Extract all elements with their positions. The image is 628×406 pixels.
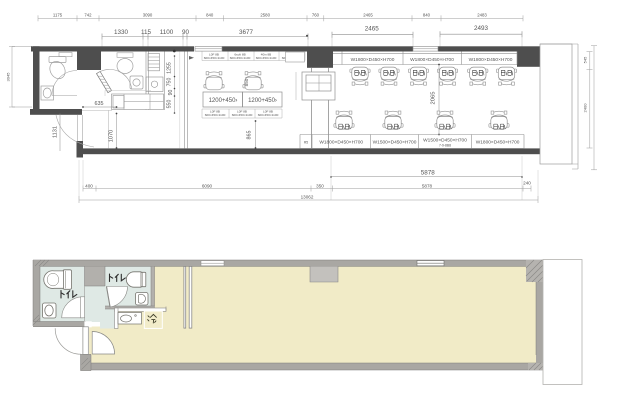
svg-text:1175: 1175	[53, 13, 63, 18]
svg-text:13062: 13062	[301, 194, 314, 199]
svg-text:865: 865	[247, 131, 253, 140]
svg-text:W1800×D450×H700: W1800×D450×H700	[469, 57, 513, 63]
svg-text:R5: R5	[304, 141, 308, 145]
svg-text:742: 742	[84, 13, 92, 18]
svg-text:W1800×D450×H700: W1800×D450×H700	[476, 140, 520, 146]
svg-text:840: 840	[423, 13, 431, 18]
svg-text:3045: 3045	[6, 72, 11, 82]
svg-text:1070: 1070	[109, 130, 115, 142]
svg-text:90: 90	[182, 29, 190, 36]
svg-text:1255: 1255	[167, 62, 173, 74]
svg-text:550: 550	[167, 100, 173, 109]
svg-text:W1800×D450×H700: W1800×D450×H700	[410, 57, 454, 63]
svg-text:600×450×1100: 600×450×1100	[256, 56, 277, 60]
svg-text:600×450×1100: 600×450×1100	[232, 113, 253, 117]
svg-text:750: 750	[167, 78, 173, 87]
svg-text:760: 760	[312, 13, 320, 18]
svg-text:2065: 2065	[431, 92, 437, 105]
svg-text:W1800×D450×H700: W1800×D450×H700	[351, 57, 395, 63]
svg-text:400: 400	[85, 183, 93, 188]
svg-text:3090: 3090	[143, 13, 153, 18]
svg-text:2400: 2400	[583, 103, 588, 113]
svg-text:850: 850	[244, 78, 249, 86]
svg-text:2493: 2493	[474, 25, 489, 32]
svg-text:600×450×1100: 600×450×1100	[258, 113, 279, 117]
svg-text:545: 545	[583, 56, 588, 63]
svg-text:1200+450›: 1200+450›	[209, 98, 238, 104]
svg-text:3677: 3677	[239, 29, 254, 36]
svg-text:840: 840	[206, 13, 214, 18]
svg-text:115: 115	[141, 29, 152, 36]
svg-text:5878: 5878	[421, 170, 436, 177]
svg-text:600×450×1100: 600×450×1100	[205, 113, 226, 117]
svg-text:1131: 1131	[53, 126, 59, 138]
svg-text:2483: 2483	[477, 13, 487, 18]
svg-text:1200+450›: 1200+450›	[248, 98, 277, 104]
svg-text:2465: 2465	[363, 13, 373, 18]
svg-text:7-9-8B8: 7-9-8B8	[439, 144, 451, 148]
svg-text:W1500×D450×H700: W1500×D450×H700	[373, 140, 417, 146]
svg-text:635: 635	[95, 101, 104, 107]
svg-text:2580: 2580	[260, 13, 270, 18]
svg-text:6090: 6090	[202, 183, 213, 188]
svg-text:W1500×D450×H700: W1500×D450×H700	[423, 137, 467, 143]
svg-text:2465: 2465	[365, 26, 380, 33]
svg-text:350: 350	[316, 183, 324, 188]
svg-text:1100: 1100	[160, 29, 174, 36]
svg-text:1330: 1330	[114, 29, 129, 36]
svg-text:5878: 5878	[422, 183, 433, 188]
svg-text:600×450×1100: 600×450×1100	[230, 56, 251, 60]
svg-text:600×450×1100: 600×450×1100	[204, 56, 225, 60]
svg-text:240: 240	[523, 181, 531, 186]
svg-text:90: 90	[168, 90, 174, 96]
svg-text:W1800×D450×H700: W1800×D450×H700	[319, 140, 363, 146]
